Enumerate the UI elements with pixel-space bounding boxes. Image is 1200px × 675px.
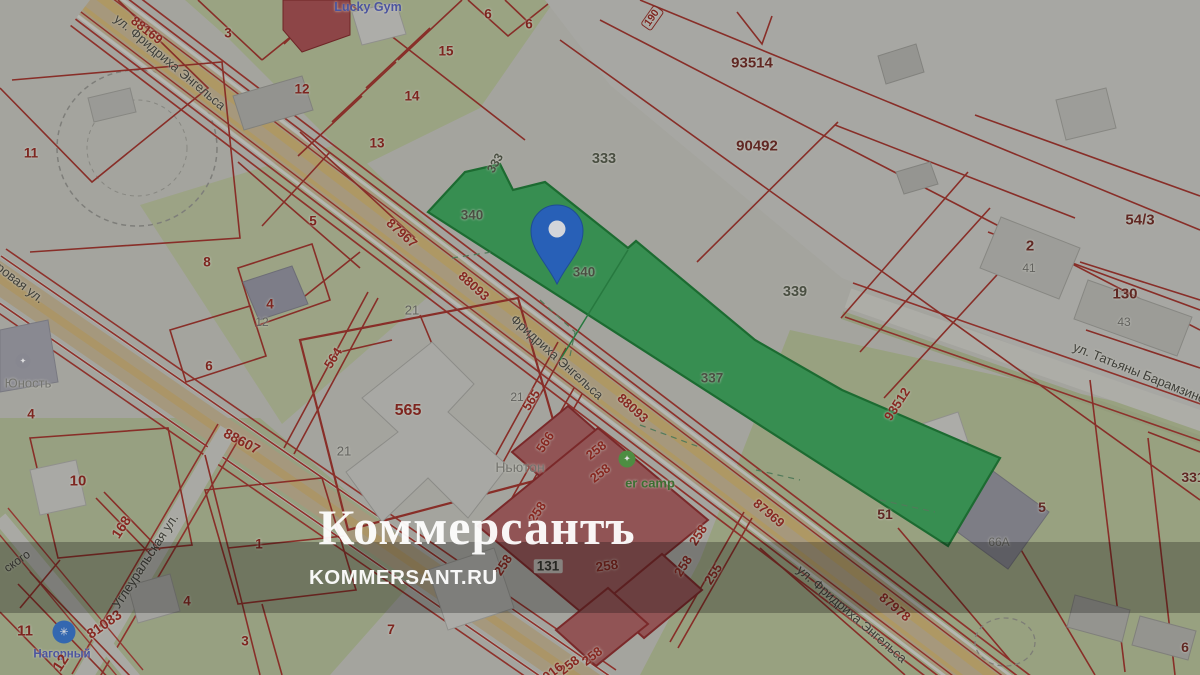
stadium-poi-icon[interactable]: ✦ — [16, 354, 31, 369]
parcel-number: 14 — [404, 89, 419, 103]
building-number: 21 — [405, 304, 419, 317]
poi-label-gym[interactable]: Lucky Gym — [334, 1, 401, 14]
parcel-number: 3 — [241, 634, 249, 648]
parcel-number: 90492 — [736, 139, 778, 154]
poi-glyph: ✳ — [59, 626, 68, 639]
parcel-number: 12 — [294, 82, 309, 96]
building-number: 66А — [988, 536, 1009, 548]
parcel-number: 7 — [387, 622, 395, 636]
building-number: 21 — [510, 391, 523, 403]
camp-poi-icon[interactable]: ✦ — [619, 451, 636, 468]
parcel-number: 5 — [1038, 500, 1046, 514]
parcel-number: 51 — [877, 507, 893, 521]
parcel-number: 333 — [592, 152, 616, 167]
watermark-site-url: KOMMERSANT.RU — [309, 566, 498, 590]
building-number: 258 — [595, 558, 619, 575]
map-viewport[interactable]: ✳ ✦ ✦ ул. Фридриха Энгельса 88169 Lucky … — [0, 0, 1200, 675]
parcel-number: 93514 — [731, 56, 773, 71]
building-number: 21 — [337, 445, 351, 458]
parcel-number: 54/3 — [1125, 213, 1154, 228]
parcel-number: 130 — [1112, 287, 1137, 302]
parcel-number: 339 — [783, 285, 807, 300]
parcel-number: 4 — [183, 594, 191, 608]
parcel-number: 15 — [438, 44, 453, 58]
parcel-number: 6 — [205, 359, 213, 373]
building-number: 41 — [1022, 262, 1035, 274]
parcel-number: 4 — [27, 407, 35, 421]
parcel-number: 8 — [203, 255, 211, 269]
parcel-number: 340 — [461, 208, 484, 222]
poi-glyph: ✦ — [623, 454, 631, 465]
parcel-number: 4 — [266, 297, 274, 311]
parcel-number: 13 — [369, 136, 384, 150]
parcel-number: 340 — [573, 265, 596, 279]
poi-label-camp[interactable]: er camp — [625, 477, 675, 490]
parcel-number: 6 — [1181, 640, 1189, 654]
parcel-number: 1 — [255, 537, 263, 551]
building-number-chip: 131 — [534, 559, 563, 573]
parcel-number: 2 — [1026, 239, 1034, 254]
building-number: 12 — [255, 316, 268, 328]
poi-marker-icon[interactable]: ✳ — [53, 621, 76, 644]
parcel-number: 11 — [17, 624, 33, 639]
parcel-number: 6 — [525, 17, 533, 31]
building-number: 43 — [1117, 316, 1130, 328]
parcel-number: 10 — [70, 474, 87, 489]
parcel-number: 565 — [395, 403, 422, 419]
poi-glyph: ✦ — [20, 357, 27, 366]
poi-label-school[interactable]: Ньютон — [495, 460, 544, 474]
parcel-number: 3 — [224, 26, 232, 40]
watermark-title: Коммерсантъ — [318, 498, 635, 556]
parcel-number: 6 — [484, 7, 492, 21]
parcel-number: 11 — [24, 146, 38, 160]
poi-label-stadium[interactable]: Юность — [5, 377, 52, 390]
parcel-number: 5 — [309, 214, 317, 228]
parcel-number: 337 — [701, 371, 724, 385]
parcel-number: 331 — [1181, 470, 1200, 484]
